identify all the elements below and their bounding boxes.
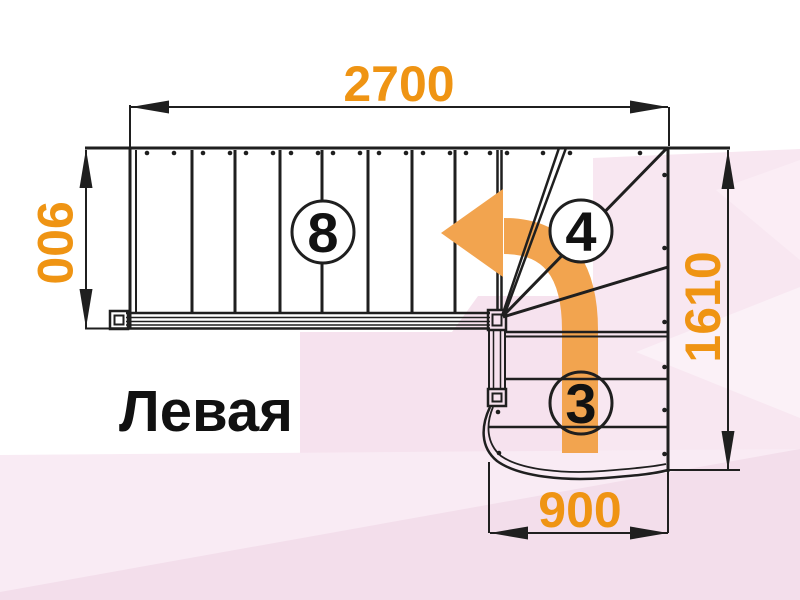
background-polygon-mid	[300, 296, 593, 455]
dimension-left-value: 900	[27, 201, 83, 284]
dimension-bottom-value: 900	[538, 482, 621, 538]
upper-flight-count-label: 8	[307, 201, 338, 264]
stair-plan-drawing: 8 4 3 2700 900 1610 900 Левая	[0, 0, 800, 600]
dimension-left-top-arrow	[80, 149, 93, 188]
background-polygons	[0, 149, 800, 600]
page-title: Левая	[119, 379, 293, 444]
dimension-top: 2700	[130, 56, 669, 148]
winder-count-label: 4	[565, 200, 596, 263]
left-newel-post	[110, 311, 128, 329]
lower-flight-count-label: 3	[565, 372, 596, 435]
dimension-top-right-arrow	[630, 101, 668, 114]
dimension-left-bottom-arrow	[80, 289, 93, 328]
dimension-top-value: 2700	[343, 56, 454, 112]
dimension-top-left-arrow	[131, 101, 169, 114]
direction-arrowhead	[441, 189, 503, 277]
dimension-left: 900	[27, 149, 112, 329]
stair-plan-canvas: 8 4 3 2700 900 1610 900 Левая	[0, 0, 800, 600]
dimension-right-value: 1610	[675, 251, 731, 362]
upper-flight-stringer	[110, 313, 490, 329]
